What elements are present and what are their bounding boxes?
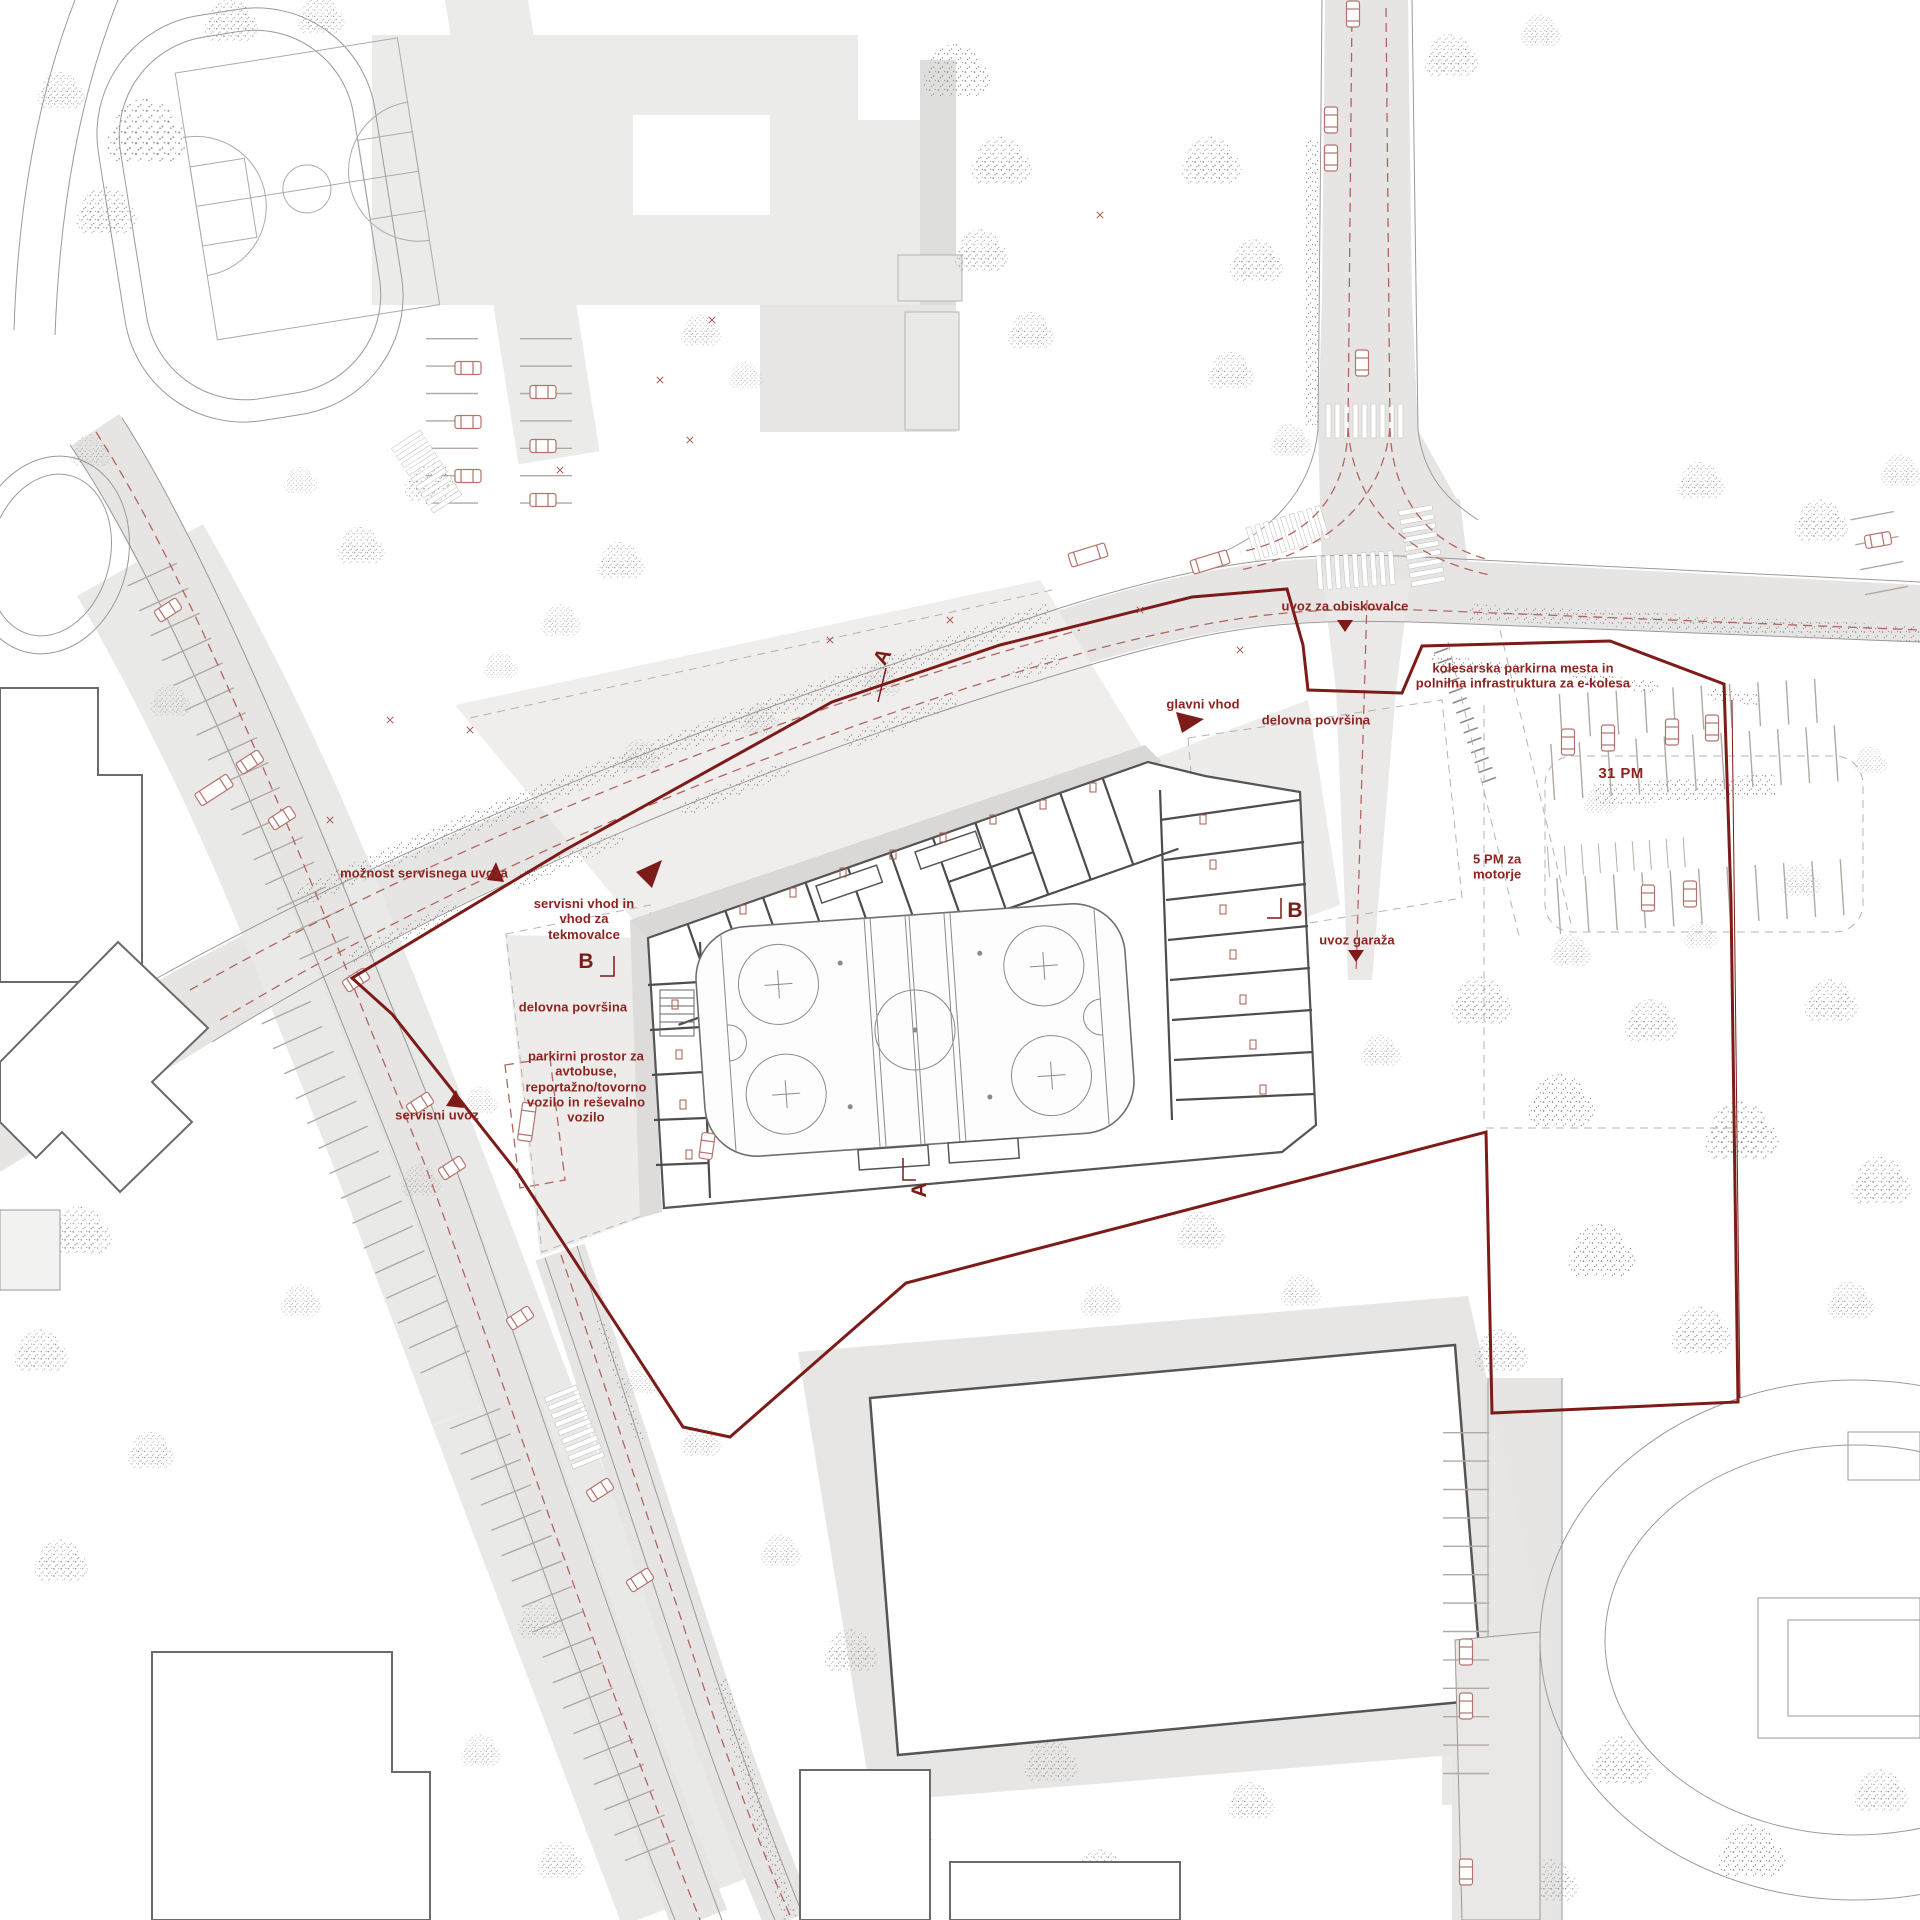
label-uvoz-garaza: uvoz garaža <box>1292 932 1422 947</box>
site-plan-drawing <box>0 0 1920 1920</box>
label-delovna-povrsina-left: delovna površina <box>488 999 658 1014</box>
label-glavni-vhod: glavni vhod <box>1138 696 1268 711</box>
label-uvoz-za-obiskovalce: uvoz za obiskovalce <box>1250 598 1440 613</box>
section-marker-a-bottom: A <box>908 1182 932 1197</box>
label-delovna-povrsina-right: delovna površina <box>1231 712 1401 727</box>
label-moznost-servisnega-uvoza: možnost servisnega uvoza <box>304 865 544 880</box>
ice-rink <box>693 900 1138 1159</box>
site-plan-canvas: uvoz za obiskovalce kolesarska parkirna … <box>0 0 1920 1920</box>
label-parkirni-prostor: parkirni prostor za avtobuse, reportažno… <box>491 1049 681 1126</box>
section-marker-b-right: B <box>1287 899 1302 923</box>
section-marker-b-left: B <box>578 950 593 974</box>
label-31-pm: 31 PM <box>1576 765 1666 783</box>
label-servisni-vhod: servisni vhod in vhod za tekmovalce <box>514 896 654 942</box>
label-servisni-uvoz: servisni uvoz <box>372 1107 502 1122</box>
label-5-pm-za-motorje: 5 PM za motorje <box>1473 852 1573 883</box>
label-kolesarska-parkirna-mesta: kolesarska parkirna mesta in polnilna in… <box>1393 661 1653 692</box>
